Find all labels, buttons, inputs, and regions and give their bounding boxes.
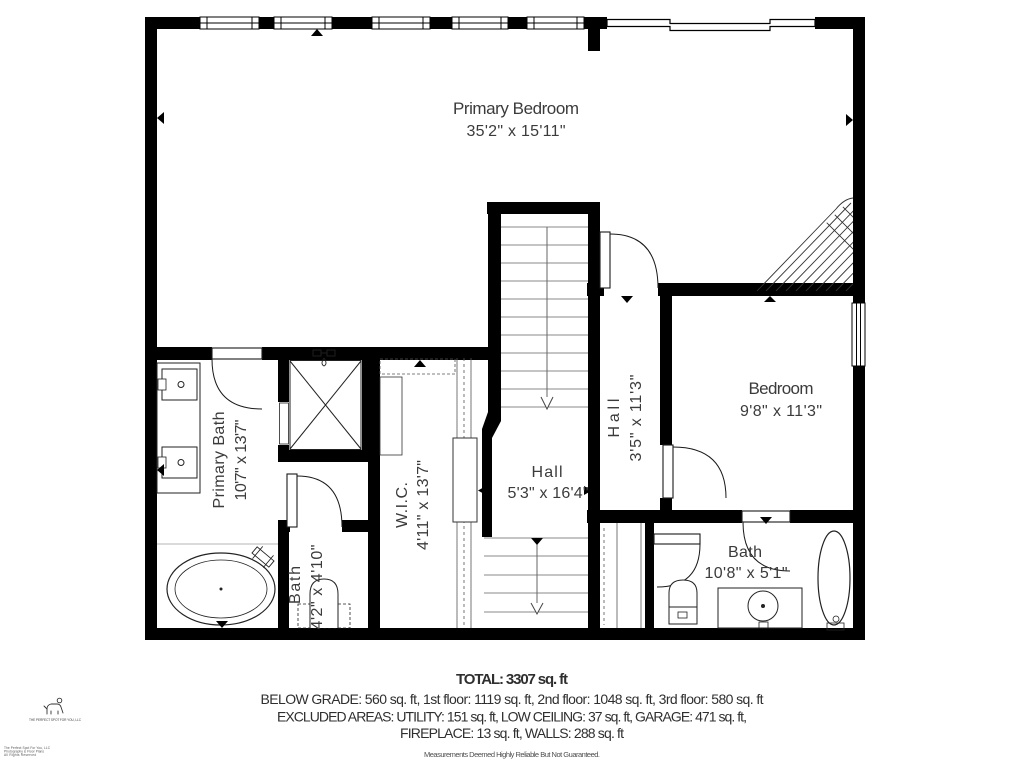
freestanding-tub bbox=[167, 544, 277, 625]
door-primary-bath bbox=[212, 348, 262, 409]
door-bedroom bbox=[663, 445, 726, 498]
logo-caption: THE PERFECT SPOT FOR YOU, LLC bbox=[29, 718, 82, 722]
closet-rods bbox=[604, 523, 641, 628]
label-bath-small-name: Bath bbox=[287, 566, 304, 604]
label-hall-main-dims: 5'3" x 16'4" bbox=[508, 485, 589, 502]
bathtub bbox=[818, 531, 850, 630]
label-bath-name: Bath bbox=[728, 544, 762, 561]
window-icon bbox=[372, 17, 430, 29]
label-wic-dims: 4'11" x 13'7" bbox=[415, 460, 432, 550]
tick-marker bbox=[846, 114, 853, 126]
summary-disclaimer: Measurements Deemed Highly Reliable But … bbox=[424, 750, 600, 759]
tick-marker bbox=[157, 112, 164, 124]
toilet-bath bbox=[669, 580, 697, 624]
stairs-upper bbox=[501, 207, 588, 409]
label-hall-upper-name: Hall bbox=[606, 399, 623, 438]
summary-walls: FIREPLACE: 13 sq. ft, WALLS: 288 sq. ft bbox=[400, 725, 624, 741]
label-primary-bath-name: Primary Bath bbox=[211, 412, 228, 509]
bedroom-window bbox=[852, 303, 865, 366]
window-icon bbox=[452, 17, 508, 29]
window-icon bbox=[274, 17, 332, 29]
label-hall-main-name: Hall bbox=[532, 464, 563, 481]
door-small-bath bbox=[287, 474, 342, 527]
tick-marker bbox=[621, 296, 633, 303]
summary-total: TOTAL: 3307 sq. ft bbox=[456, 671, 568, 688]
branding: THE PERFECT SPOT FOR YOU, LLC The Perfec… bbox=[4, 698, 82, 757]
dog-logo-icon bbox=[44, 698, 63, 714]
vanity-bath bbox=[718, 588, 802, 628]
label-bedroom-dims: 9'8" x 11'3" bbox=[740, 403, 822, 420]
floor-plan-page: Primary Bedroom 35'2" x 15'11" Bedroom 9… bbox=[0, 0, 1024, 768]
label-primary-bedroom-name: Primary Bedroom bbox=[453, 99, 579, 118]
fine-print-line: All Rights Reserved bbox=[4, 753, 36, 757]
label-primary-bedroom-dims: 35'2" x 15'11" bbox=[467, 123, 566, 140]
label-primary-bath-dims: 10'7" x 13'7" bbox=[233, 420, 250, 501]
label-wic-name: W.I.C. bbox=[394, 482, 411, 528]
label-bedroom-name: Bedroom bbox=[749, 379, 814, 398]
summary-excluded: EXCLUDED AREAS: UTILITY: 151 sq. ft, LOW… bbox=[277, 709, 747, 725]
tick-marker bbox=[311, 29, 323, 36]
door-landing bbox=[600, 232, 658, 288]
room-labels: Primary Bedroom 35'2" x 15'11" Bedroom 9… bbox=[211, 99, 822, 630]
area-summary: TOTAL: 3307 sq. ft BELOW GRADE: 560 sq. … bbox=[261, 671, 764, 759]
tub-faucet-icon bbox=[827, 616, 844, 630]
label-hall-upper-dims: 3'5" x 11'3" bbox=[628, 375, 645, 462]
sink-icon bbox=[158, 369, 197, 400]
tick-marker bbox=[764, 296, 776, 302]
window-icon bbox=[200, 17, 259, 29]
shower bbox=[280, 350, 362, 450]
label-bath-dims: 10'8" x 5'1" bbox=[705, 565, 788, 582]
stepped-knee-wall bbox=[607, 20, 815, 31]
stairs-lower bbox=[484, 538, 588, 614]
door-bath-closet bbox=[654, 534, 700, 587]
tick-marker bbox=[414, 360, 426, 367]
floor-plan: Primary Bedroom 35'2" x 15'11" Bedroom 9… bbox=[0, 0, 1024, 768]
window-icon bbox=[527, 17, 584, 29]
label-bath-small-dims: 4'2" x 4'10" bbox=[309, 545, 326, 630]
summary-floors: BELOW GRADE: 560 sq. ft, 1st floor: 1119… bbox=[261, 691, 764, 707]
stair-start-marker bbox=[531, 538, 543, 545]
